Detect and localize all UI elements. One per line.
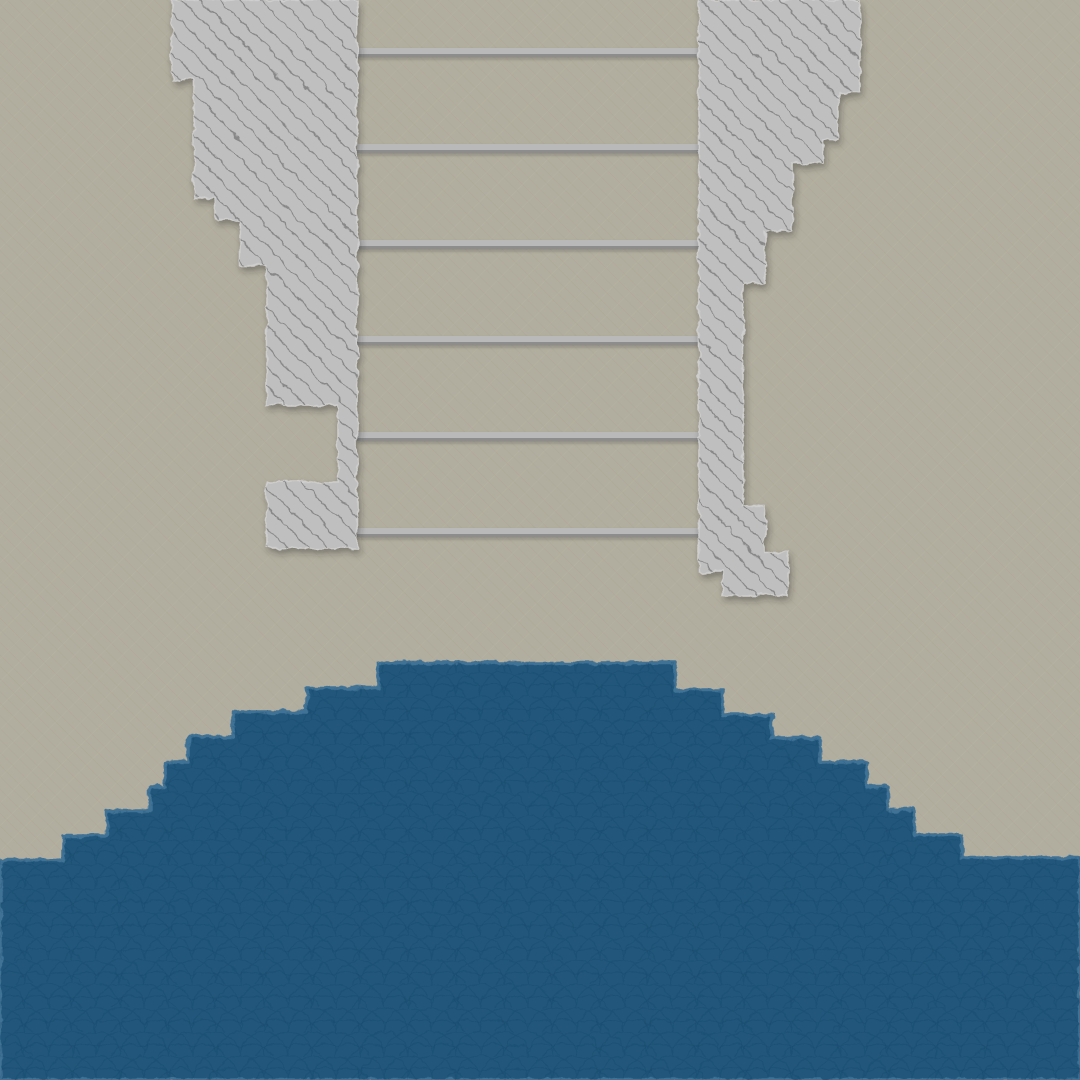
ladder-rung-5: [357, 432, 700, 441]
ladder-rung-1: [357, 48, 700, 57]
ladder-rung-shadow-line: [357, 438, 700, 441]
ladder-rung-face: [357, 240, 700, 246]
ladder-rung-face: [357, 528, 700, 534]
ladder-rung-face: [357, 48, 700, 54]
ladder-rung-face: [357, 336, 700, 342]
game-viewport[interactable]: [0, 0, 1080, 1080]
game-stage: [0, 0, 1080, 1080]
ladder-rung-4: [357, 336, 700, 345]
ladder-rung-shadow-line: [357, 54, 700, 57]
ladder-rung-shadow-line: [357, 342, 700, 345]
ladder-rung-face: [357, 144, 700, 150]
ladder-rung-face: [357, 432, 700, 438]
ladder-rung-shadow-line: [357, 534, 700, 537]
ladder-rung-shadow-line: [357, 150, 700, 153]
ladder-rung-6: [357, 528, 700, 537]
ladder-rung-3: [357, 240, 700, 249]
ladder-rung-shadow-line: [357, 246, 700, 249]
ladder-rung-2: [357, 144, 700, 153]
